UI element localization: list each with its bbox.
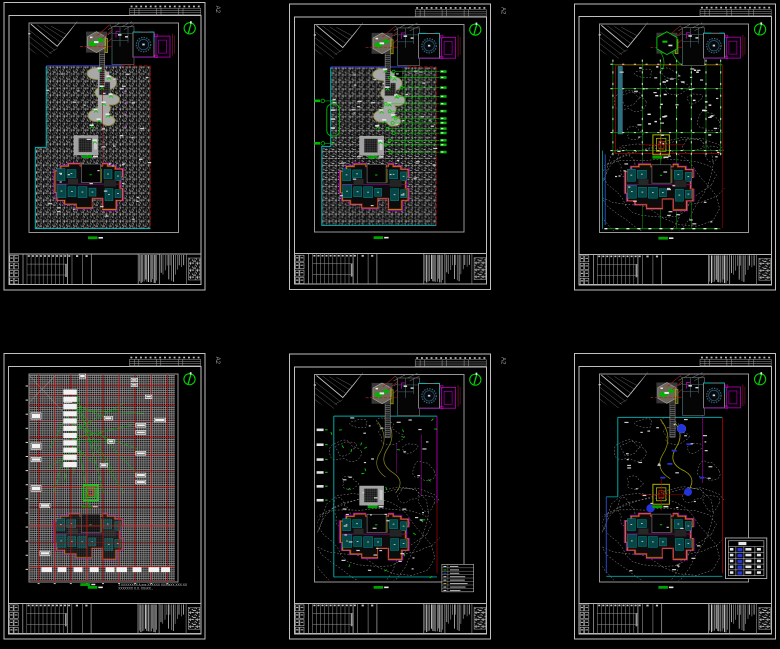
svg-text:XXXXXXX X.X. XXxXX.,: XXXXXXX X.X. XXxXX., — [118, 587, 153, 591]
